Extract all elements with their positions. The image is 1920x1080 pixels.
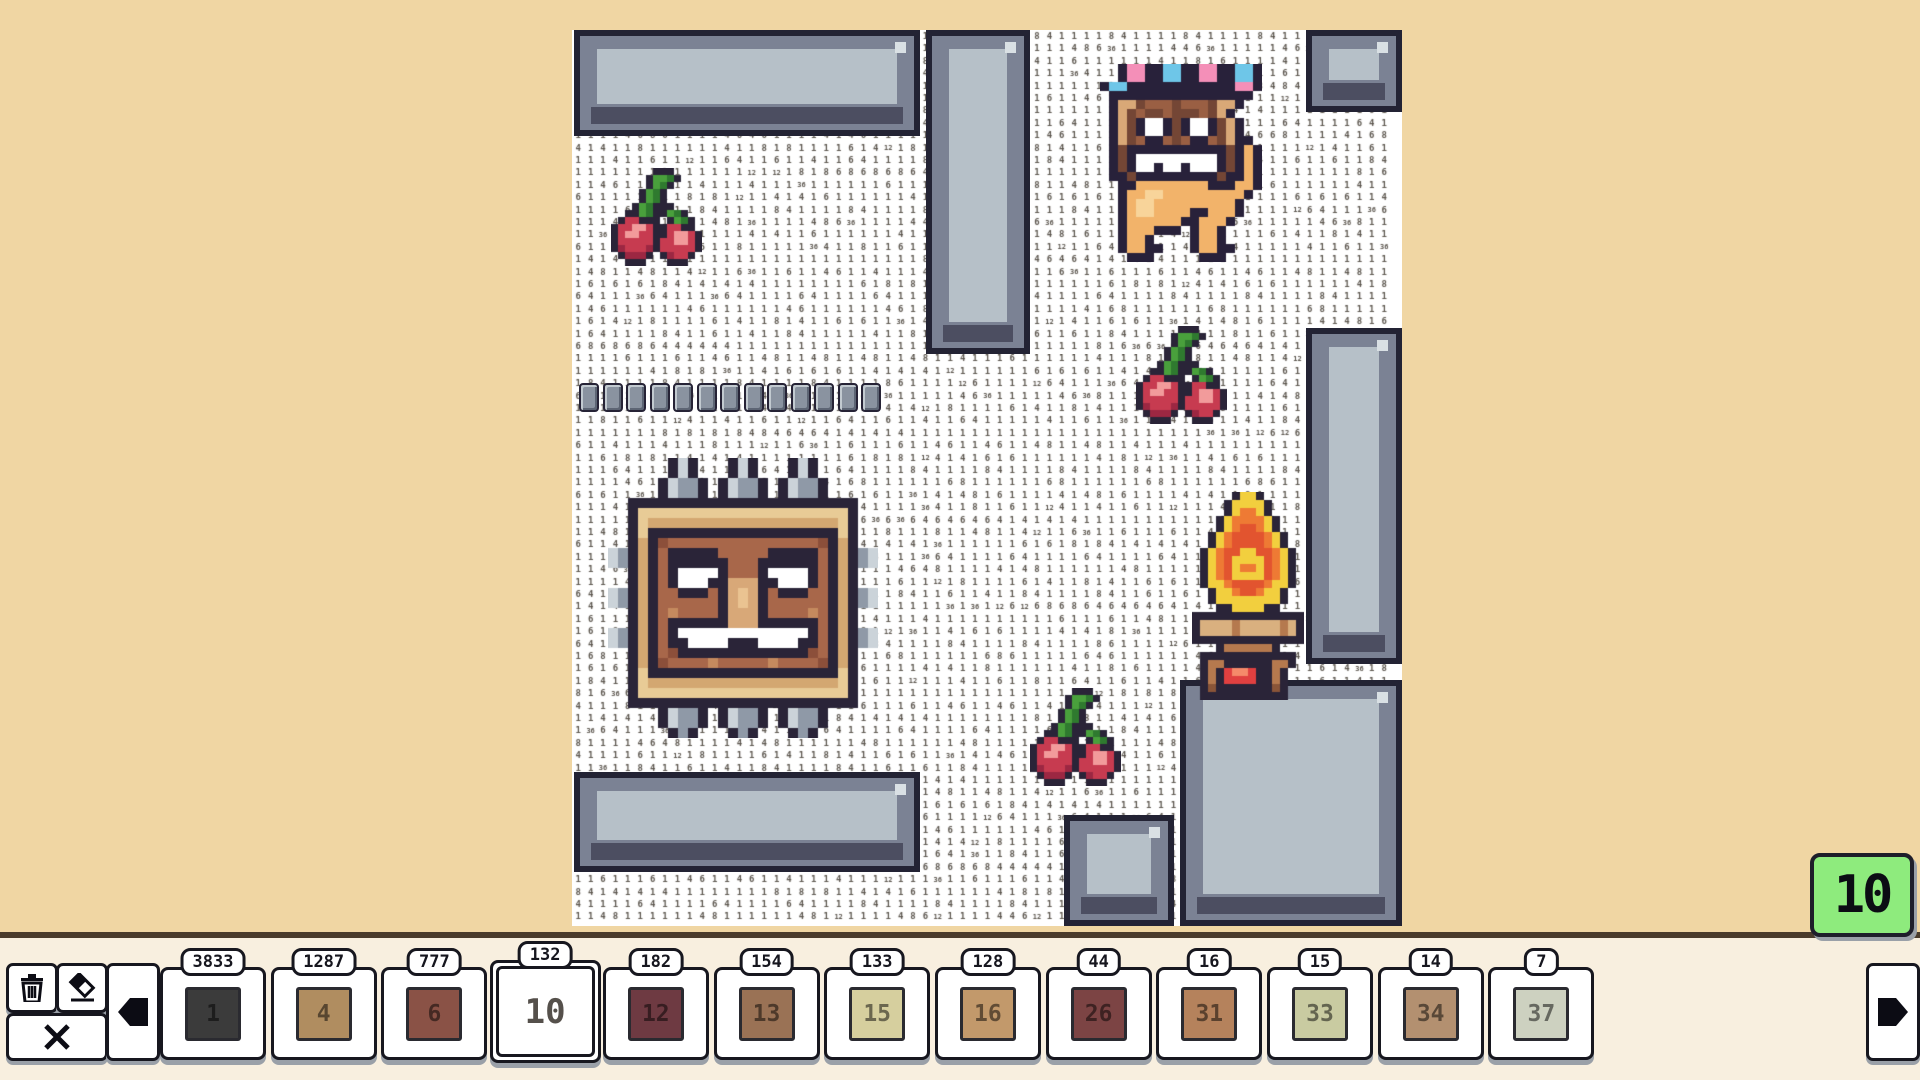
remaining-count-badge: 777 [407,948,462,976]
palette-color-card[interactable]: 1287 4 [271,967,377,1060]
stone-block [1180,680,1402,926]
chain-bead [814,383,834,412]
color-swatch: 34 [1403,987,1459,1041]
cherry-sprite [611,168,702,266]
game-screen: 10 [0,0,1920,1080]
close-button[interactable] [6,1013,108,1061]
close-icon [42,1023,72,1051]
chain-bead [720,383,740,412]
chain-bead [650,383,670,412]
remaining-count-badge: 1287 [291,948,356,976]
progress-badge-value: 10 [1834,865,1891,925]
color-swatch: 6 [406,987,462,1041]
palette-color-card[interactable]: 44 26 [1046,967,1152,1060]
remaining-count-badge: 182 [628,948,683,976]
chain-bead [767,383,787,412]
remaining-count-badge: 44 [1076,948,1120,976]
palette-color-card[interactable]: 777 6 [381,967,487,1060]
remaining-count-badge: 7 [1524,948,1558,976]
color-swatch: 10 [520,988,570,1036]
stone-block [574,30,920,136]
eraser-button[interactable] [56,963,108,1013]
chain-bead [603,383,623,412]
color-swatch: 31 [1181,987,1237,1041]
remaining-count-badge: 154 [739,948,794,976]
chain-bead [673,383,693,412]
chain-bead [791,383,811,412]
stone-block [1306,30,1402,112]
palette-color-card[interactable]: 132 10 [490,960,601,1063]
chain-bead [579,383,599,412]
color-swatch: 33 [1292,987,1348,1041]
palette-color-card[interactable]: 15 33 [1267,967,1373,1060]
remaining-count-badge: 132 [518,941,573,969]
color-swatch: 15 [849,987,905,1041]
palette-color-card[interactable]: 16 31 [1156,967,1262,1060]
color-swatch: 1 [185,987,241,1041]
stone-block [1064,815,1174,926]
arrow-right-icon [1876,994,1910,1030]
cherry-sprite [1030,688,1121,786]
trash-button[interactable] [6,963,58,1013]
chain-bead [697,383,717,412]
color-swatch: 26 [1071,987,1127,1041]
color-swatch: 13 [739,987,795,1041]
remaining-count-badge: 16 [1187,948,1231,976]
progress-badge: 10 [1810,853,1914,937]
arrow-left-icon [116,994,150,1030]
trash-icon [19,974,45,1002]
color-swatch: 16 [960,987,1016,1041]
palette-color-card[interactable]: 182 12 [603,967,709,1060]
remaining-count-badge: 133 [850,948,905,976]
stone-block [1306,328,1402,664]
prev-page-button[interactable] [106,963,160,1061]
color-swatch: 12 [628,987,684,1041]
color-swatch: 4 [296,987,352,1041]
palette-color-card[interactable]: 133 15 [824,967,930,1060]
color-swatch: 37 [1513,987,1569,1041]
chain-bead [861,383,881,412]
remaining-count-badge: 128 [961,948,1016,976]
remaining-count-badge: 15 [1298,948,1342,976]
eraser-icon [67,973,97,1003]
stone-block [574,772,920,872]
palette-color-card[interactable]: 7 37 [1488,967,1594,1060]
remaining-count-badge: 14 [1408,948,1452,976]
palette-color-card[interactable]: 128 16 [935,967,1041,1060]
chain-bead [626,383,646,412]
totem-sprite [608,458,878,738]
chain-bead [838,383,858,412]
palette-color-card[interactable]: 14 34 [1378,967,1484,1060]
cherry-sprite [1136,326,1227,424]
palette-color-card[interactable]: 3833 1 [160,967,266,1060]
creature-sprite [1100,64,1262,262]
spike-chain [579,383,881,412]
firepit-sprite [1192,492,1304,700]
remaining-count-badge: 3833 [181,948,246,976]
next-page-button[interactable] [1866,963,1920,1061]
stone-block [926,30,1030,354]
chain-bead [744,383,764,412]
palette-color-card[interactable]: 154 13 [714,967,820,1060]
